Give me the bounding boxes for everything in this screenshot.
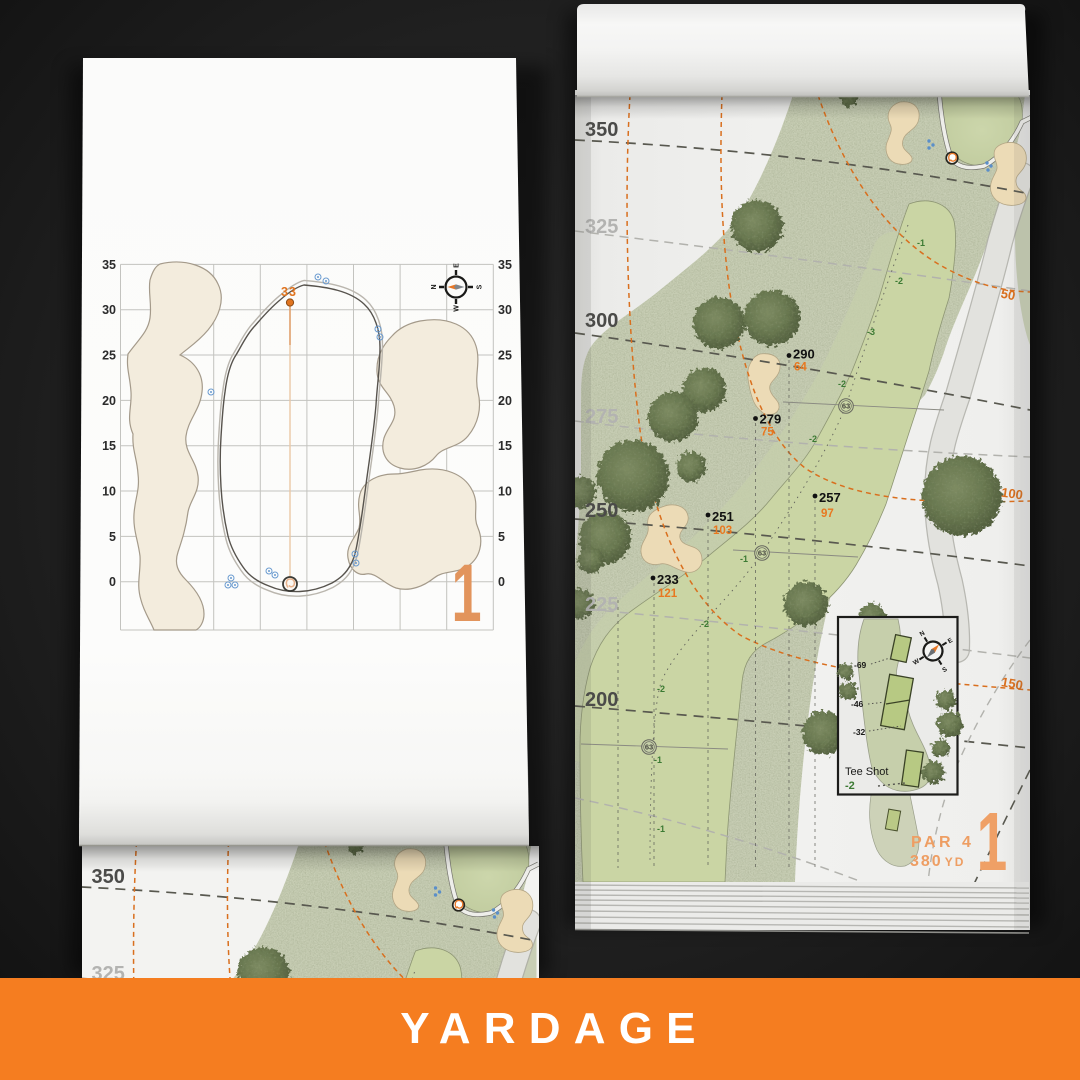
svg-text:35: 35 bbox=[102, 258, 116, 272]
svg-text:1: 1 bbox=[451, 547, 481, 639]
svg-text:10: 10 bbox=[102, 485, 116, 499]
svg-text:20: 20 bbox=[102, 394, 116, 408]
svg-text:5: 5 bbox=[498, 530, 505, 544]
svg-text:30: 30 bbox=[498, 303, 512, 317]
svg-text:YARDAGE: YARDAGE bbox=[400, 1004, 708, 1053]
svg-text:35: 35 bbox=[498, 258, 512, 272]
svg-text:15: 15 bbox=[102, 439, 116, 453]
svg-text:0: 0 bbox=[109, 575, 116, 589]
svg-text:20: 20 bbox=[498, 394, 512, 408]
svg-text:30: 30 bbox=[102, 303, 116, 317]
svg-text:E: E bbox=[454, 263, 461, 268]
svg-text:W: W bbox=[454, 305, 461, 312]
svg-text:10: 10 bbox=[498, 485, 512, 499]
svg-text:15: 15 bbox=[498, 439, 512, 453]
svg-text:5: 5 bbox=[109, 530, 116, 544]
svg-text:0: 0 bbox=[498, 575, 505, 589]
svg-text:25: 25 bbox=[102, 349, 116, 363]
svg-text:33: 33 bbox=[281, 285, 297, 299]
svg-text:25: 25 bbox=[498, 349, 512, 363]
svg-text:N: N bbox=[431, 284, 438, 289]
svg-text:S: S bbox=[477, 284, 484, 289]
